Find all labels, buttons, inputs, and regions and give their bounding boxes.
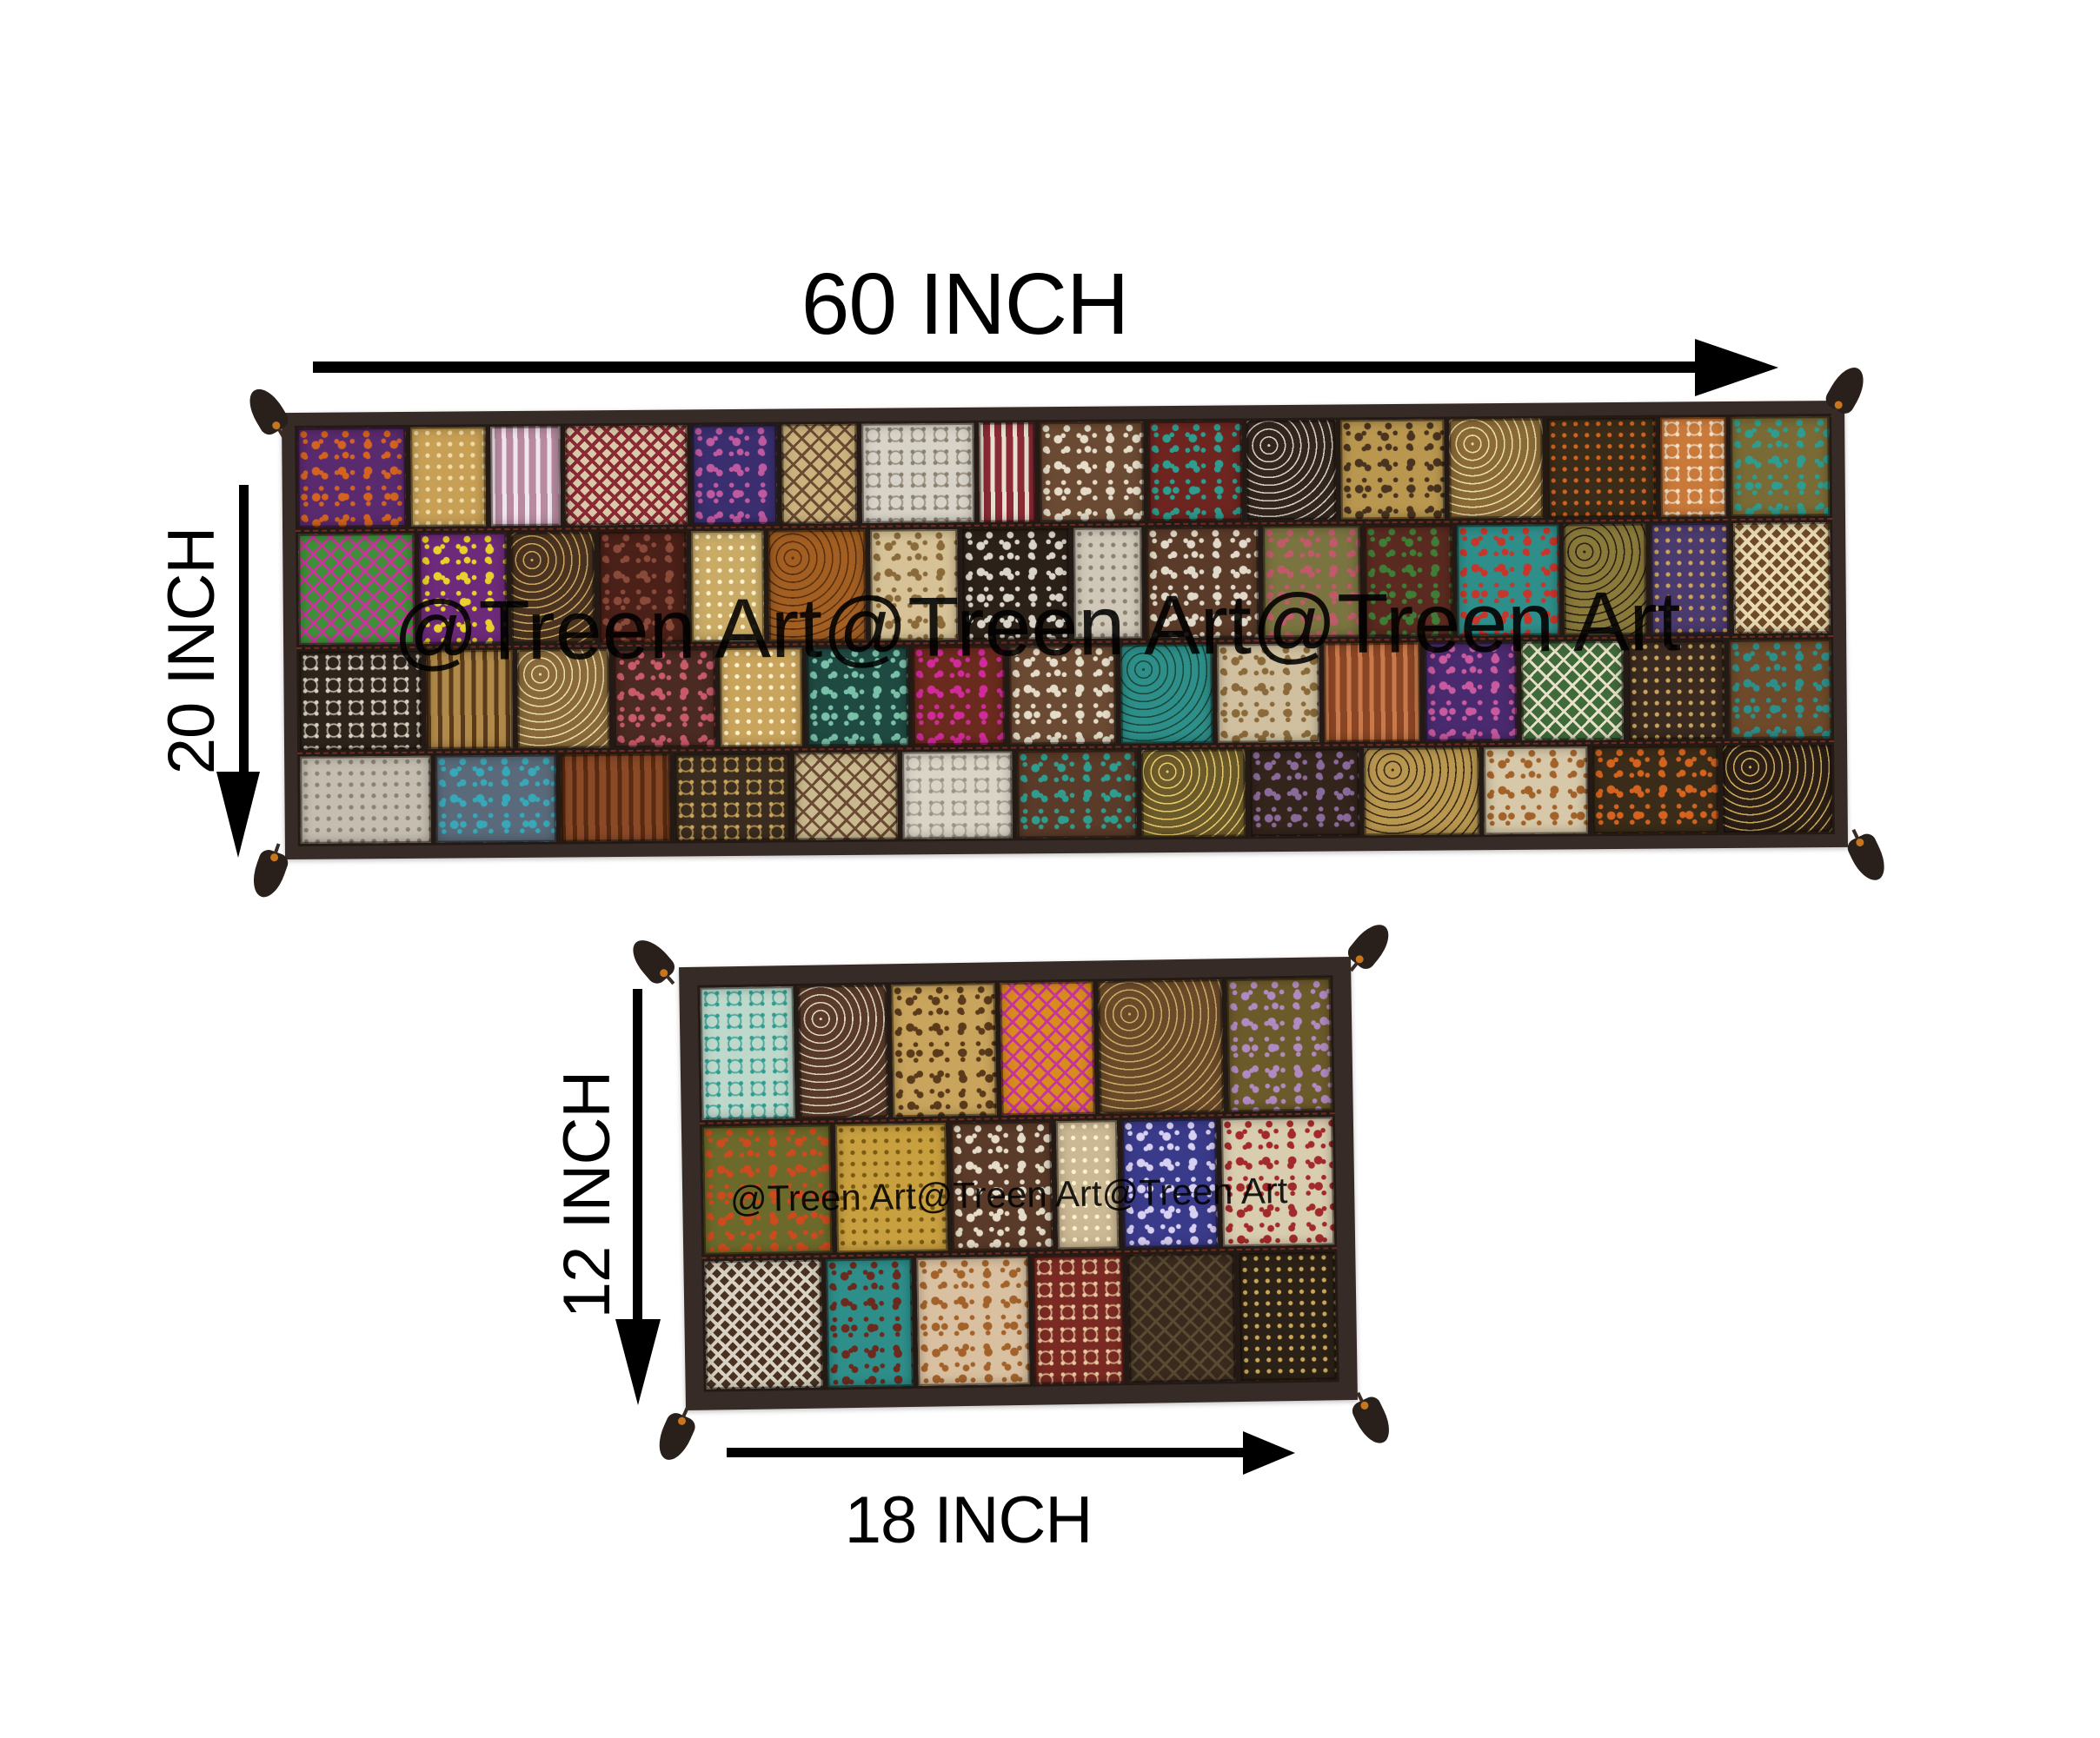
fabric-patch <box>1365 747 1479 835</box>
fabric-patch <box>675 753 789 841</box>
fabric-patch <box>1340 420 1444 519</box>
fabric-patch <box>794 753 899 840</box>
fabric-patch <box>1246 421 1336 520</box>
arrow-head-right <box>1695 339 1778 396</box>
fabric-patch <box>1017 750 1137 838</box>
fabric-patch <box>490 427 562 526</box>
arrow-shaft <box>727 1448 1245 1457</box>
patch-row <box>697 975 1334 1122</box>
tassel <box>1345 918 1397 972</box>
fabric-patch <box>1141 750 1246 838</box>
arrow-shaft <box>239 485 249 773</box>
fabric-patch <box>979 422 1035 521</box>
patch-row <box>701 1247 1339 1392</box>
fabric-patch <box>781 424 857 523</box>
table-mat-photo: @Treen Art@Treen Art@Treen Art <box>679 957 1358 1410</box>
fabric-patch <box>1547 418 1656 517</box>
tassel <box>652 1410 698 1465</box>
runner-width-label: 60 INCH <box>801 261 1128 348</box>
fabric-patch <box>1239 1251 1337 1381</box>
tassel <box>1823 362 1871 417</box>
fabric-patch <box>1040 421 1144 521</box>
fabric-patch <box>1449 419 1543 518</box>
watermark-text: @Treen Art@Treen Art@Treen Art <box>393 579 1681 673</box>
arrow-head-down <box>615 1319 661 1405</box>
product-image-canvas: 60 INCH 20 INCH @Treen Art@Treen Art@Tre… <box>0 0 2100 1738</box>
fabric-patch <box>861 423 974 523</box>
fabric-patch <box>798 985 887 1118</box>
fabric-patch <box>1730 640 1831 739</box>
watermark-text: @Treen Art@Treen Art@Treen Art <box>730 1172 1288 1217</box>
fabric-patch <box>916 1257 1029 1386</box>
fabric-patch <box>1128 1253 1236 1383</box>
arrow-shaft <box>633 989 642 1321</box>
fabric-patch <box>1227 978 1332 1111</box>
tassel <box>1844 831 1891 886</box>
patch-row <box>295 414 1832 529</box>
fabric-patch <box>692 425 777 524</box>
table-runner-photo: @Treen Art@Treen Art@Treen Art <box>282 401 1848 859</box>
tassel <box>1349 1394 1396 1449</box>
fabric-patch <box>435 755 555 843</box>
fabric-patch <box>891 983 996 1116</box>
tassel <box>243 382 292 438</box>
fabric-patch <box>1033 1255 1125 1384</box>
fabric-patch <box>700 986 794 1119</box>
mat-height-label: 12 INCH <box>555 1071 621 1318</box>
fabric-patch <box>1098 979 1224 1113</box>
fabric-patch <box>903 752 1013 839</box>
fabric-patch <box>1592 746 1718 833</box>
fabric-patch <box>561 754 670 842</box>
arrow-shaft <box>313 362 1697 373</box>
fabric-patch <box>297 428 406 527</box>
fabric-patch <box>1723 745 1832 833</box>
fabric-patch <box>1733 522 1831 634</box>
fabric-patch <box>1484 746 1588 834</box>
fabric-patch <box>410 427 486 526</box>
tassel <box>625 932 678 987</box>
patch-row <box>297 740 1835 846</box>
fabric-patch <box>565 425 688 525</box>
arrow-head-right <box>1243 1431 1295 1475</box>
fabric-patch <box>1731 416 1830 515</box>
fabric-patch <box>1148 421 1242 520</box>
arrow-head-down <box>216 772 260 858</box>
fabric-patch <box>1660 417 1726 516</box>
fabric-patch <box>826 1258 913 1388</box>
mat-width-label: 18 INCH <box>845 1488 1092 1554</box>
fabric-patch <box>300 756 431 844</box>
fabric-patch <box>704 1259 822 1389</box>
fabric-patch <box>1000 982 1094 1115</box>
fabric-patch <box>1250 748 1359 836</box>
runner-height-label: 20 INCH <box>159 527 225 774</box>
